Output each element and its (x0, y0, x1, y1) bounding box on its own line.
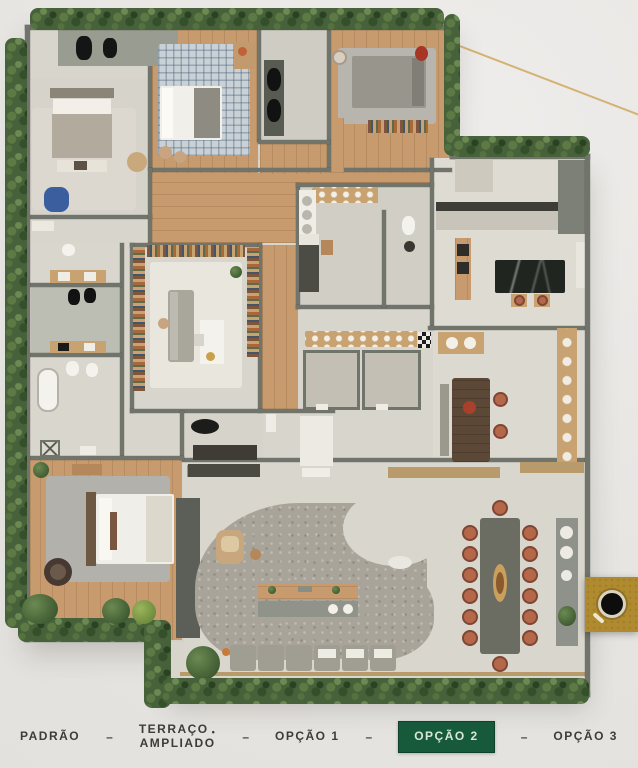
dresser (72, 464, 102, 475)
door-leaf (316, 404, 328, 410)
bath-mat (80, 446, 96, 455)
kitchen-cabinet (455, 160, 493, 192)
pouf (174, 151, 186, 163)
bar-sink (328, 604, 338, 614)
wall (150, 168, 452, 172)
terrace-chair (462, 525, 478, 541)
entry-console (32, 221, 54, 231)
bedroom1-bed (52, 114, 112, 158)
blue-armchair (44, 187, 69, 212)
sofa-module (258, 645, 284, 671)
buffet-shelf (305, 331, 417, 347)
tab-opcao-3[interactable]: OPÇÃO 3 (553, 730, 618, 744)
bush (132, 600, 156, 624)
stone-decor (388, 556, 412, 569)
decor-item (238, 47, 247, 56)
wall (29, 353, 121, 357)
sofa-cushion (318, 649, 336, 658)
bedroom1-pillows (53, 99, 111, 114)
cabinets (302, 468, 330, 477)
black-sink (267, 68, 281, 91)
black-basin (84, 288, 96, 303)
accent-cushion (110, 512, 117, 550)
bush (102, 598, 130, 624)
dining-table (452, 378, 490, 462)
centerpiece-dish (463, 401, 476, 414)
planter-bench (388, 467, 500, 478)
tab-opcao-2[interactable]: OPÇÃO 2 (398, 721, 495, 753)
zoom-button[interactable] (585, 577, 638, 632)
bookshelf (247, 247, 259, 357)
sofa-cushion (346, 649, 364, 658)
bathtub (37, 368, 59, 412)
plan-option-tabs: PADRÃO – TERRAÇO • AMPLIADO – OPÇÃO 1 – … (0, 708, 638, 766)
bar-sink (464, 337, 476, 349)
tab-label-line2: AMPLIADO (140, 737, 216, 751)
toilet (402, 216, 415, 235)
plant (558, 606, 576, 626)
bar-plant (332, 586, 340, 594)
terrace-chair (462, 567, 478, 583)
lounge-pad (221, 536, 239, 552)
bar-plant (268, 586, 276, 594)
hall2-floor (265, 411, 433, 460)
washer-door (302, 196, 312, 206)
reading-chair (127, 152, 147, 172)
red-plant (415, 46, 428, 61)
tab-terraco-ampliado[interactable]: TERRAÇO • AMPLIADO (139, 723, 217, 751)
bed-throw (146, 496, 172, 562)
sink (84, 343, 95, 351)
bookshelf (133, 247, 145, 391)
bookshelf (147, 245, 245, 257)
dining-bench (440, 384, 449, 456)
sink (84, 272, 96, 281)
bench-item (74, 161, 87, 170)
paving-notch (343, 490, 447, 566)
side-table (158, 318, 169, 329)
sofa-module (230, 645, 256, 671)
crockery-column (557, 328, 577, 464)
terrace-chair (522, 588, 538, 604)
black-sink (58, 343, 69, 351)
terrace-chair (462, 588, 478, 604)
bar-sink (343, 604, 353, 614)
sofa-cushion (374, 649, 392, 658)
dish (560, 546, 573, 559)
bedroom2-pillows (162, 88, 173, 138)
terrace-chair (522, 609, 538, 625)
tab-padrao[interactable]: PADRÃO (20, 730, 80, 744)
sofa-cushions (170, 292, 178, 360)
stool-seat (514, 295, 525, 306)
storage-room (303, 350, 360, 410)
column (266, 414, 276, 432)
tab-opcao-1[interactable]: OPÇÃO 1 (275, 730, 340, 744)
terrace-chair (462, 609, 478, 625)
oval-table (191, 419, 219, 434)
bush (22, 594, 58, 624)
dish (560, 526, 573, 539)
terrace-chair (522, 567, 538, 583)
greenery-bottom (162, 678, 589, 704)
wall (257, 25, 261, 142)
wall (382, 210, 386, 307)
wall (296, 305, 434, 309)
decorative-diagonal-line (451, 42, 638, 119)
greenery-top (30, 8, 444, 30)
greenery-left (5, 38, 27, 628)
tab-separator: – (366, 730, 373, 744)
centerpiece (496, 572, 504, 594)
toilet (66, 361, 79, 376)
decor-item (222, 648, 230, 656)
wall (29, 283, 121, 287)
planter-bench (520, 462, 584, 473)
decor-tray (206, 352, 215, 361)
greenery-step (444, 14, 460, 156)
screenshot-root: PADRÃO – TERRAÇO • AMPLIADO – OPÇÃO 1 – … (0, 0, 638, 768)
dining-chair (493, 392, 508, 407)
round-sink (404, 241, 415, 252)
bookshelf (368, 120, 428, 133)
wardrobe (300, 416, 333, 466)
wall (148, 168, 152, 245)
bedroom2-shelf (234, 42, 256, 69)
terrace-chair (492, 656, 508, 672)
terrace-chair (462, 546, 478, 562)
tab-separator: – (242, 730, 249, 744)
closet-garment (103, 38, 117, 58)
master-headboard (86, 492, 96, 566)
washer-door (302, 224, 312, 234)
tab-label-line1: TERRAÇO (139, 723, 209, 737)
checkered-mat (418, 332, 431, 348)
sink (58, 272, 70, 281)
dark-sofa (193, 445, 257, 460)
terrace-chair (522, 525, 538, 541)
plant (230, 266, 242, 278)
pouf (159, 146, 172, 159)
closet-garment (76, 36, 92, 60)
kitchen-countertop (436, 202, 558, 211)
footnote-marker: • (212, 727, 217, 737)
black-sink (267, 99, 281, 122)
dining-chair (493, 424, 508, 439)
plant (33, 462, 49, 478)
wall (25, 215, 152, 219)
corridor-floor (262, 245, 298, 411)
terrace-tree (186, 646, 220, 680)
terrace-chair (462, 630, 478, 646)
side-stool (250, 549, 261, 560)
storage-room (362, 350, 421, 410)
wall (180, 411, 184, 460)
terrace-console (188, 464, 260, 477)
wall (258, 140, 330, 144)
terrace-chair (492, 500, 508, 516)
kitchen-island (495, 260, 565, 293)
bar-item (298, 586, 312, 592)
bar-counter (438, 332, 484, 354)
bedroom3-pillows (412, 58, 424, 106)
door-leaf (376, 404, 388, 410)
stool-seat (537, 295, 548, 306)
wall (430, 158, 434, 330)
toilet (62, 244, 75, 256)
dish (561, 570, 572, 581)
magnifier-icon (598, 590, 626, 618)
terrace-edge (180, 672, 586, 676)
washer-door (302, 210, 312, 220)
terrace-chair (522, 630, 538, 646)
bedroom2-blanket (194, 88, 220, 138)
bidet (86, 363, 98, 377)
black-basin (68, 289, 80, 305)
bedroom1-headboard (50, 88, 114, 98)
kitchen-tall-unit (558, 160, 586, 234)
desk-chair (194, 334, 204, 346)
tab-separator: – (106, 730, 113, 744)
pantry-shelf (312, 187, 378, 203)
sofa-module (286, 645, 312, 671)
oven (457, 244, 469, 256)
armchair-seat (50, 564, 66, 580)
bedroom3-desk (331, 118, 344, 172)
single-bed-pillow (299, 234, 319, 245)
terrace-chair (522, 546, 538, 562)
oven (457, 262, 469, 274)
nightstand (321, 240, 333, 255)
bar-sink (446, 337, 458, 349)
wall (120, 243, 124, 458)
shower-door (40, 440, 60, 457)
tab-separator: – (521, 730, 528, 744)
basket (332, 50, 347, 65)
greenery-step (452, 136, 590, 157)
